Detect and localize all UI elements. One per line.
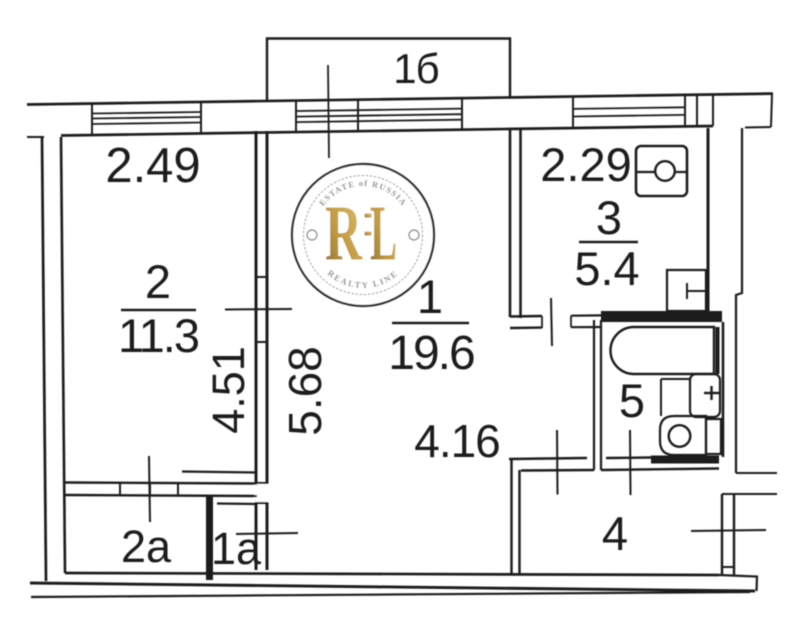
svg-text:2a: 2a — [121, 521, 172, 572]
svg-text:1б: 1б — [393, 45, 438, 92]
svg-text:1a: 1a — [211, 523, 262, 574]
svg-text:4.16: 4.16 — [414, 415, 500, 467]
svg-text:5.4: 5.4 — [574, 242, 639, 295]
svg-text:11.3: 11.3 — [118, 309, 199, 362]
svg-text:4: 4 — [602, 507, 628, 560]
svg-text:2: 2 — [145, 255, 171, 308]
svg-text:L: L — [370, 189, 397, 277]
svg-text:19.6: 19.6 — [388, 327, 474, 380]
svg-text:4.51: 4.51 — [203, 346, 254, 434]
svg-text:2.49: 2.49 — [105, 139, 200, 193]
svg-text:5: 5 — [619, 374, 645, 427]
svg-text:2.29: 2.29 — [540, 138, 631, 191]
svg-text:R: R — [325, 191, 363, 278]
svg-text:5.68: 5.68 — [279, 346, 331, 436]
svg-text:3: 3 — [596, 191, 622, 244]
